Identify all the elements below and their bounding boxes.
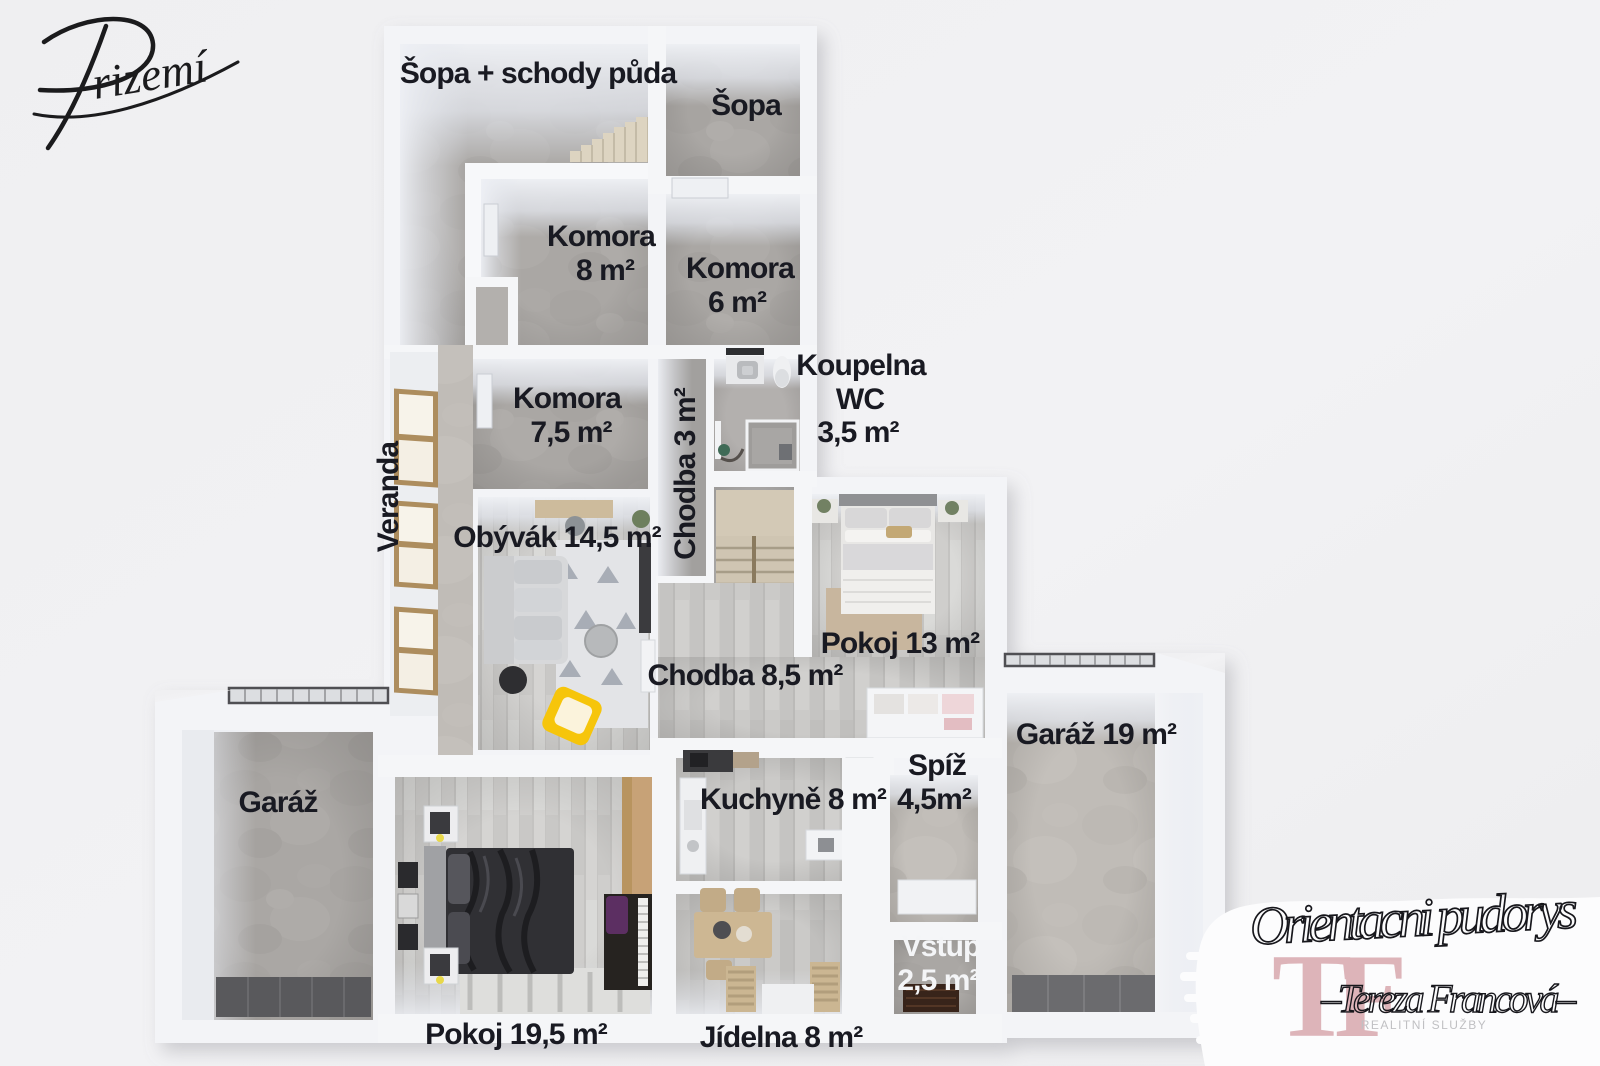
svg-text:Veranda: Veranda <box>372 441 405 553</box>
svg-text:3,5 m²: 3,5 m² <box>817 416 899 449</box>
svg-text:Garáž 19 m²: Garáž 19 m² <box>1016 718 1177 751</box>
svg-text:Vstup: Vstup <box>902 930 981 963</box>
svg-text:Jídelna 8 m²: Jídelna 8 m² <box>700 1021 864 1054</box>
svg-text:Šopa: Šopa <box>711 88 782 122</box>
svg-text:Spíž: Spíž <box>908 749 966 782</box>
svg-text:Komora: Komora <box>513 382 622 415</box>
svg-text:Chodba 3 m²: Chodba 3 m² <box>669 387 702 560</box>
svg-text:6 m²: 6 m² <box>708 286 767 319</box>
svg-text:WC: WC <box>836 383 884 416</box>
svg-text:Koupelna: Koupelna <box>796 349 927 382</box>
svg-text:Kuchyně 8 m²: Kuchyně 8 m² <box>700 783 887 816</box>
svg-text:Pokoj 19,5 m²: Pokoj 19,5 m² <box>425 1018 608 1051</box>
svg-text:REALITNÍ SLUŽBY: REALITNÍ SLUŽBY <box>1361 1017 1488 1032</box>
svg-text:8 m²: 8 m² <box>576 254 635 287</box>
svg-text:Garáž: Garáž <box>239 786 318 819</box>
svg-text:4,5m²: 4,5m² <box>897 783 972 816</box>
svg-text:Komora: Komora <box>547 220 656 253</box>
svg-text:Pokoj 13 m²: Pokoj 13 m² <box>821 627 980 660</box>
svg-text:Komora: Komora <box>686 252 795 285</box>
svg-text:7,5 m²: 7,5 m² <box>530 416 612 449</box>
svg-text:Šopa + schody půda: Šopa + schody půda <box>400 56 678 90</box>
svg-text:–Tereza Francová–: –Tereza Francová– <box>1320 976 1577 1021</box>
svg-text:Obývák 14,5 m²: Obývák 14,5 m² <box>453 521 661 554</box>
svg-text:Chodba 8,5 m²: Chodba 8,5 m² <box>648 659 844 692</box>
svg-text:2,5 m²: 2,5 m² <box>897 964 979 997</box>
